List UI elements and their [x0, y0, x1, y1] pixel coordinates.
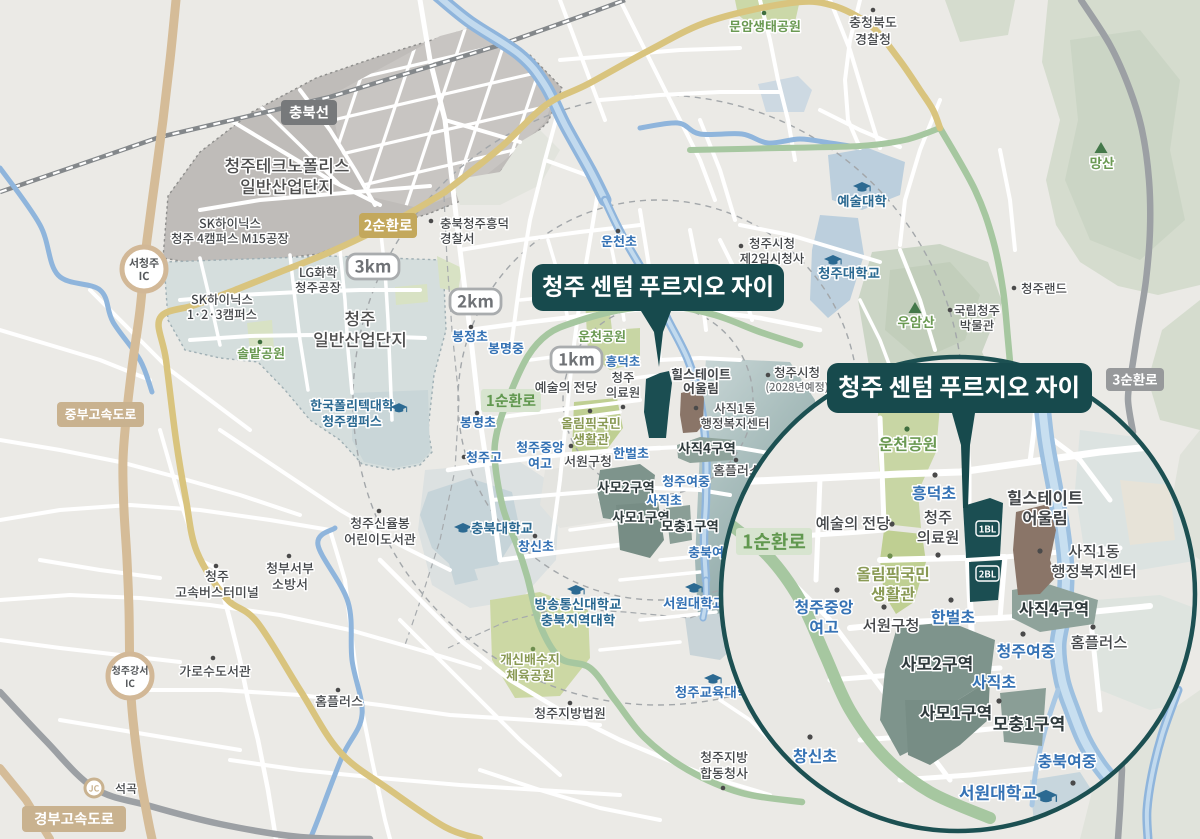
svg-text:고속버스터미널: 고속버스터미널 [175, 582, 259, 601]
svg-text:가로수도서관: 가로수도서관 [179, 661, 251, 680]
svg-text:사직초: 사직초 [972, 669, 1016, 693]
svg-text:일반산업단지: 일반산업단지 [313, 326, 407, 351]
svg-text:일반산업단지: 일반산업단지 [240, 173, 334, 198]
svg-text:경부고속도로: 경부고속도로 [34, 808, 114, 829]
svg-text:청주지방법원: 청주지방법원 [534, 703, 606, 722]
svg-text:1·2·3캠퍼스: 1·2·3캠퍼스 [187, 304, 257, 323]
svg-text:흥덕초: 흥덕초 [912, 480, 956, 504]
svg-text:의료원: 의료원 [917, 526, 960, 548]
svg-text:청주여중: 청주여중 [662, 471, 710, 490]
svg-text:어울림: 어울림 [683, 378, 719, 397]
svg-text:3순환로: 3순환로 [1112, 368, 1157, 388]
svg-text:사모1구역: 사모1구역 [920, 699, 993, 724]
svg-text:2BL: 2BL [979, 567, 997, 581]
svg-text:생활관: 생활관 [871, 581, 915, 605]
svg-text:청주여중: 청주여중 [997, 638, 1056, 662]
svg-text:합동청사: 합동청사 [700, 763, 748, 782]
svg-text:IC: IC [139, 268, 150, 284]
svg-text:충북지역대학: 충북지역대학 [541, 609, 616, 629]
svg-text:청주: 청주 [924, 506, 953, 528]
svg-text:행정복지센터: 행정복지센터 [1051, 560, 1137, 582]
svg-text:청주 4캠퍼스 M15공장: 청주 4캠퍼스 M15공장 [171, 228, 289, 247]
svg-text:충북대학교: 충북대학교 [471, 517, 533, 537]
svg-text:모충1구역: 모충1구역 [993, 710, 1066, 735]
svg-text:1순환로: 1순환로 [486, 390, 536, 411]
svg-text:청주랜드: 청주랜드 [1021, 278, 1067, 297]
svg-text:홈플러스: 홈플러스 [315, 691, 363, 710]
svg-text:창신초: 창신초 [793, 743, 837, 767]
svg-text:사모2구역: 사모2구역 [901, 650, 974, 675]
svg-text:경찰청: 경찰청 [855, 29, 891, 48]
svg-text:청주캠퍼스: 청주캠퍼스 [322, 411, 382, 430]
svg-text:2순환로: 2순환로 [364, 215, 413, 236]
svg-text:한벌초: 한벌초 [931, 604, 975, 628]
svg-text:모충1구역: 모충1구역 [661, 515, 719, 535]
svg-text:IC: IC [125, 675, 135, 690]
svg-text:사직4구역: 사직4구역 [1019, 596, 1089, 620]
svg-text:봉정초: 봉정초 [452, 326, 488, 345]
svg-text:체육공원: 체육공원 [506, 665, 554, 684]
svg-text:소방서: 소방서 [272, 574, 308, 593]
svg-text:운천공원: 운천공원 [879, 431, 938, 455]
svg-text:JC: JC [89, 783, 100, 795]
svg-text:봉명초: 봉명초 [460, 412, 496, 431]
svg-text:충북선: 충북선 [289, 102, 329, 123]
svg-text:행정복지센터: 행정복지센터 [700, 413, 769, 432]
svg-text:생활관: 생활관 [573, 429, 609, 448]
svg-text:창신초: 창신초 [518, 536, 554, 555]
svg-text:예술대학: 예술대학 [837, 190, 887, 210]
svg-text:청주고: 청주고 [466, 447, 502, 466]
svg-text:홈플러스: 홈플러스 [1070, 631, 1127, 653]
svg-text:서원구청: 서원구청 [862, 614, 919, 636]
svg-text:2km: 2km [457, 288, 494, 313]
svg-text:예술의 전당: 예술의 전당 [535, 377, 598, 396]
svg-text:충북여중: 충북여중 [1038, 748, 1097, 772]
svg-text:어울림: 어울림 [1022, 505, 1068, 529]
svg-text:운천초: 운천초 [601, 231, 637, 250]
svg-text:사직1동: 사직1동 [1068, 540, 1120, 562]
svg-text:여고: 여고 [809, 614, 839, 638]
svg-text:어린이도서관: 어린이도서관 [344, 529, 416, 548]
svg-text:운천공원: 운천공원 [578, 326, 626, 345]
svg-text:(2028년예정): (2028년예정) [765, 379, 828, 395]
svg-text:청주대학교: 청주대학교 [818, 262, 880, 282]
svg-text:솔밭공원: 솔밭공원 [237, 343, 285, 362]
svg-text:경찰서: 경찰서 [440, 228, 475, 247]
svg-text:청주 센텀 푸르지오 자이: 청주 센텀 푸르지오 자이 [542, 268, 774, 302]
svg-text:문암생태공원: 문암생태공원 [729, 16, 801, 35]
svg-text:3km: 3km [355, 253, 392, 278]
svg-text:박물관: 박물관 [960, 315, 995, 334]
svg-text:우암산: 우암산 [897, 311, 935, 331]
svg-text:1km: 1km [558, 346, 595, 371]
svg-text:청주공장: 청주공장 [295, 277, 342, 296]
svg-text:여고: 여고 [528, 453, 552, 472]
svg-text:의료원: 의료원 [606, 382, 641, 401]
svg-text:봉명중: 봉명중 [488, 338, 524, 357]
svg-text:석곡: 석곡 [115, 780, 137, 797]
svg-text:서원구청: 서원구청 [564, 451, 612, 470]
svg-text:서원대학교: 서원대학교 [959, 779, 1037, 804]
svg-text:망산: 망산 [1090, 152, 1115, 172]
svg-text:서원대학교: 서원대학교 [663, 592, 725, 612]
svg-text:한벌초: 한벌초 [613, 443, 649, 462]
svg-text:중부고속도로: 중부고속도로 [65, 404, 137, 423]
svg-text:사직4구역: 사직4구역 [678, 437, 736, 457]
svg-text:1순환로: 1순환로 [742, 527, 806, 554]
svg-text:예술의 전당: 예술의 전당 [816, 512, 891, 534]
svg-text:1BL: 1BL [979, 522, 997, 536]
svg-text:청주 센텀 푸르지오 자이: 청주 센텀 푸르지오 자이 [838, 369, 1080, 404]
